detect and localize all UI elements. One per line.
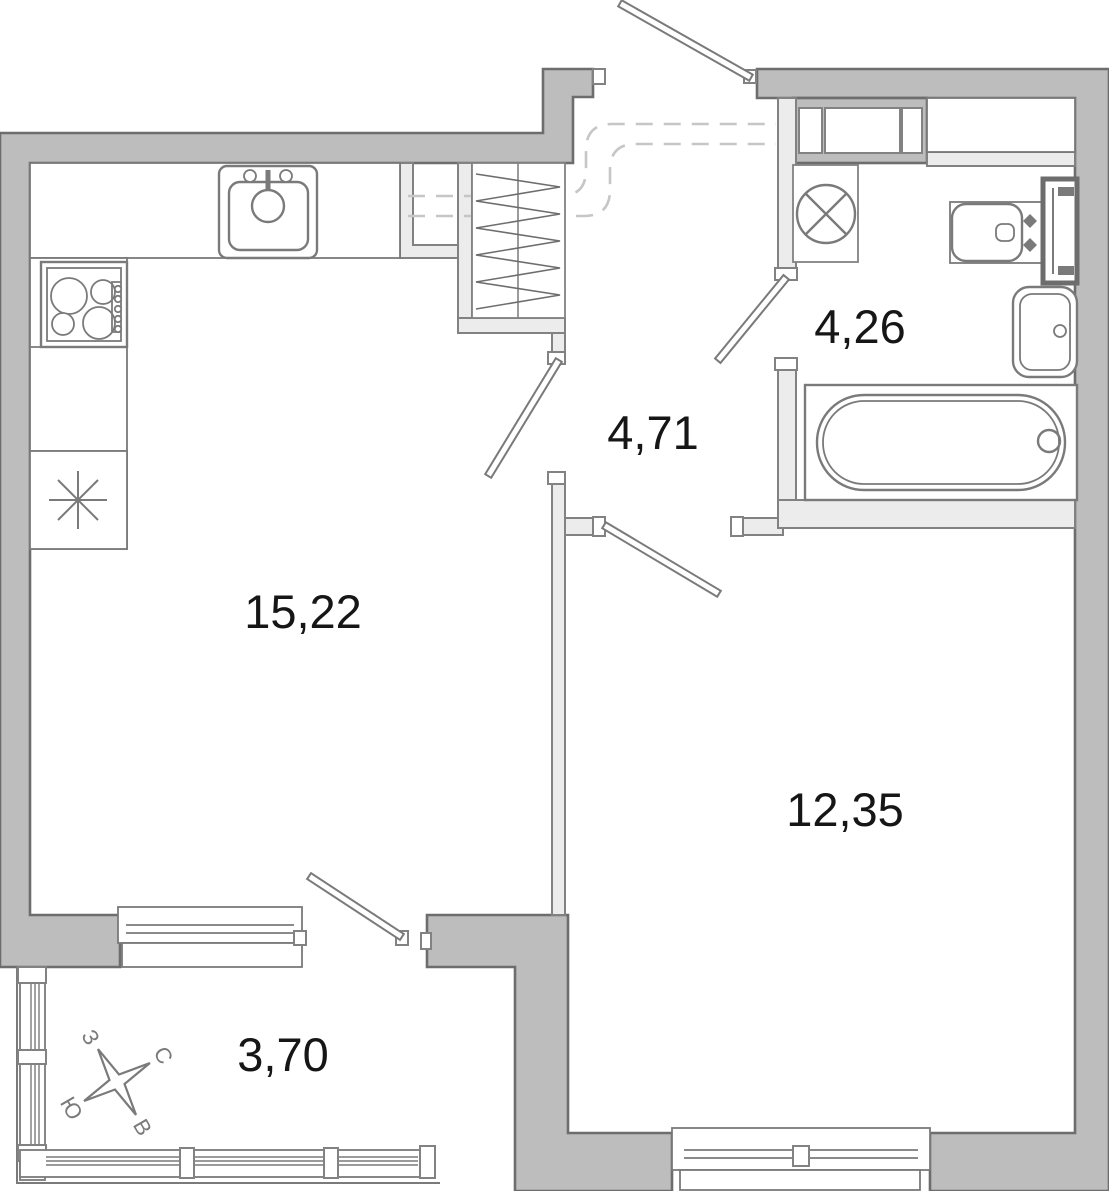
partition-kitchen-niche	[400, 163, 458, 258]
compass-west-label: З	[76, 1025, 104, 1049]
balcony-glazing-left	[18, 967, 46, 1180]
hallway-area-label: 4,71	[607, 406, 698, 459]
living-room-door	[490, 363, 557, 473]
bedroom-door	[607, 527, 716, 592]
partition-hall-bedroom-left	[565, 518, 593, 535]
bathroom-door	[720, 280, 784, 358]
partition-wardrobe-left	[458, 163, 472, 318]
partition-hall-living-lower	[552, 482, 565, 915]
bedroom-area-label: 12,35	[786, 783, 904, 836]
compass-star-icon	[65, 1030, 169, 1134]
wall-central-bottom	[427, 915, 672, 1191]
floor-plan-svg: 15,22 4,71 4,26 12,35 3,70 С В Ю З	[0, 0, 1109, 1191]
stove	[41, 262, 127, 347]
vent-shaft-cell	[799, 108, 822, 153]
balcony-area-label: 3,70	[237, 1028, 328, 1081]
kitchen-fixtures	[30, 163, 565, 549]
vent-shaft-cell	[825, 108, 900, 153]
balcony-glazing-bottom	[20, 1146, 435, 1178]
towel-radiator	[1043, 179, 1077, 283]
bathroom-area-label: 4,26	[814, 300, 905, 353]
bedroom-window	[672, 1128, 930, 1190]
partition-wardrobe-bottom	[458, 318, 565, 333]
entrance-door	[623, 5, 748, 76]
bathtub	[805, 385, 1077, 500]
compass-east-label: В	[128, 1115, 157, 1140]
vent-shaft-cell	[902, 108, 922, 153]
partition-bathroom-left-lower	[778, 370, 796, 500]
wardrobe	[472, 163, 565, 318]
compass-south-label: Ю	[55, 1092, 88, 1124]
partition-bathroom-counter-strip	[927, 152, 1075, 166]
washing-machine	[793, 165, 858, 262]
washbasin	[950, 202, 1042, 263]
compass-rose: С В Ю З	[31, 998, 203, 1166]
bathroom-counter	[927, 98, 1075, 152]
compass-north-label: С	[149, 1042, 179, 1068]
toilet	[1013, 287, 1077, 377]
kitchen-sink	[219, 166, 317, 258]
balcony-door	[312, 878, 399, 935]
partition-bathroom-bottom	[778, 500, 1075, 528]
living-balcony-window	[118, 907, 302, 967]
floor-plan: 15,22 4,71 4,26 12,35 3,70 С В Ю З	[0, 0, 1109, 1191]
living-room-area-label: 15,22	[244, 585, 362, 638]
refrigerator	[30, 451, 127, 549]
kitchen-counter	[30, 163, 400, 258]
